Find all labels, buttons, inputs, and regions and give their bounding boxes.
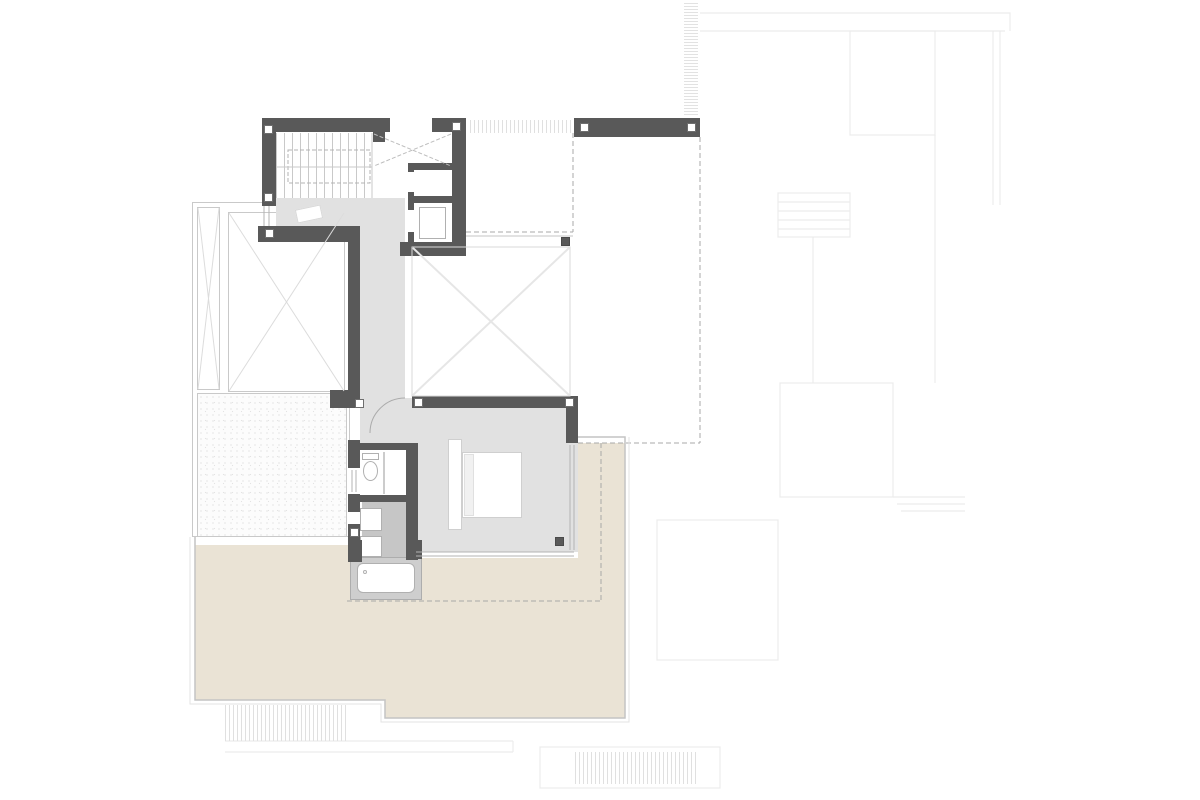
stair-void-cross: [374, 134, 451, 166]
glazing-lines: [264, 206, 574, 556]
bedroom-south-glazing: [416, 552, 574, 556]
terrace-edge-border-outer: [190, 437, 629, 722]
double-height-void-cross: [413, 248, 569, 395]
bedroom-east-glazing: [570, 445, 574, 550]
stair-west-window: [264, 206, 269, 226]
bathroom-west-window: [352, 470, 356, 492]
skylight-narrow-cross: [198, 208, 219, 389]
skylight-crosses: [198, 208, 344, 391]
terrace-edge-border: [195, 437, 625, 718]
floor-plan-canvas: [0, 0, 1200, 800]
skylight-large-cross: [229, 213, 344, 391]
roof-overhang-dashed-lines: [347, 133, 700, 601]
door-swing-arc: [370, 398, 405, 433]
plan-lines-layer: [0, 0, 1200, 800]
